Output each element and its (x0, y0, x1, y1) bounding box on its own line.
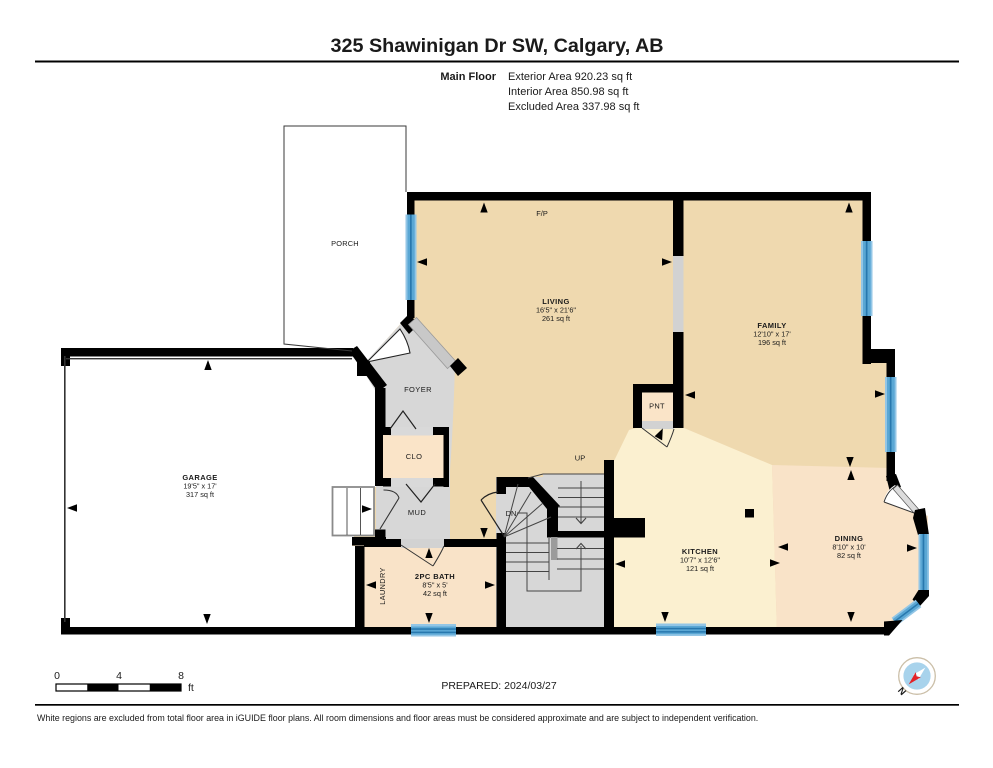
svg-text:2PC BATH: 2PC BATH (415, 572, 455, 581)
svg-text:PORCH: PORCH (331, 239, 359, 248)
svg-text:0: 0 (54, 670, 60, 682)
svg-text:82 sq ft: 82 sq ft (837, 551, 861, 560)
svg-text:261 sq ft: 261 sq ft (542, 314, 570, 323)
svg-text:4: 4 (116, 670, 122, 682)
svg-text:White regions are excluded fro: White regions are excluded from total fl… (37, 713, 758, 723)
svg-text:Excluded Area 337.98 sq ft: Excluded Area 337.98 sq ft (508, 101, 639, 113)
svg-text:42 sq ft: 42 sq ft (423, 589, 447, 598)
svg-text:LIVING: LIVING (542, 297, 569, 306)
svg-text:325 Shawinigan Dr SW, Calgary,: 325 Shawinigan Dr SW, Calgary, AB (330, 35, 663, 57)
svg-text:DN: DN (506, 509, 517, 518)
svg-text:DINING: DINING (835, 534, 864, 543)
svg-text:MUD: MUD (408, 508, 426, 517)
svg-text:Main Floor: Main Floor (440, 71, 496, 83)
svg-text:N: N (895, 685, 908, 698)
svg-text:LAUNDRY: LAUNDRY (378, 567, 387, 605)
svg-text:F/P: F/P (536, 209, 548, 218)
svg-text:KITCHEN: KITCHEN (682, 547, 718, 556)
svg-text:CLO: CLO (406, 452, 423, 461)
svg-text:PNT: PNT (649, 402, 665, 411)
svg-text:FAMILY: FAMILY (757, 321, 786, 330)
svg-text:PREPARED: 2024/03/27: PREPARED: 2024/03/27 (441, 680, 557, 692)
svg-text:GARAGE: GARAGE (182, 473, 217, 482)
svg-text:Interior Area 850.98 sq ft: Interior Area 850.98 sq ft (508, 86, 628, 98)
svg-text:FOYER: FOYER (404, 385, 432, 394)
svg-text:121 sq ft: 121 sq ft (686, 564, 714, 573)
svg-text:ft: ft (188, 682, 194, 694)
svg-text:196 sq ft: 196 sq ft (758, 338, 786, 347)
svg-text:8: 8 (178, 670, 184, 682)
svg-text:UP: UP (575, 454, 585, 463)
svg-text:317 sq ft: 317 sq ft (186, 490, 214, 499)
svg-text:Exterior Area 920.23 sq ft: Exterior Area 920.23 sq ft (508, 71, 632, 83)
